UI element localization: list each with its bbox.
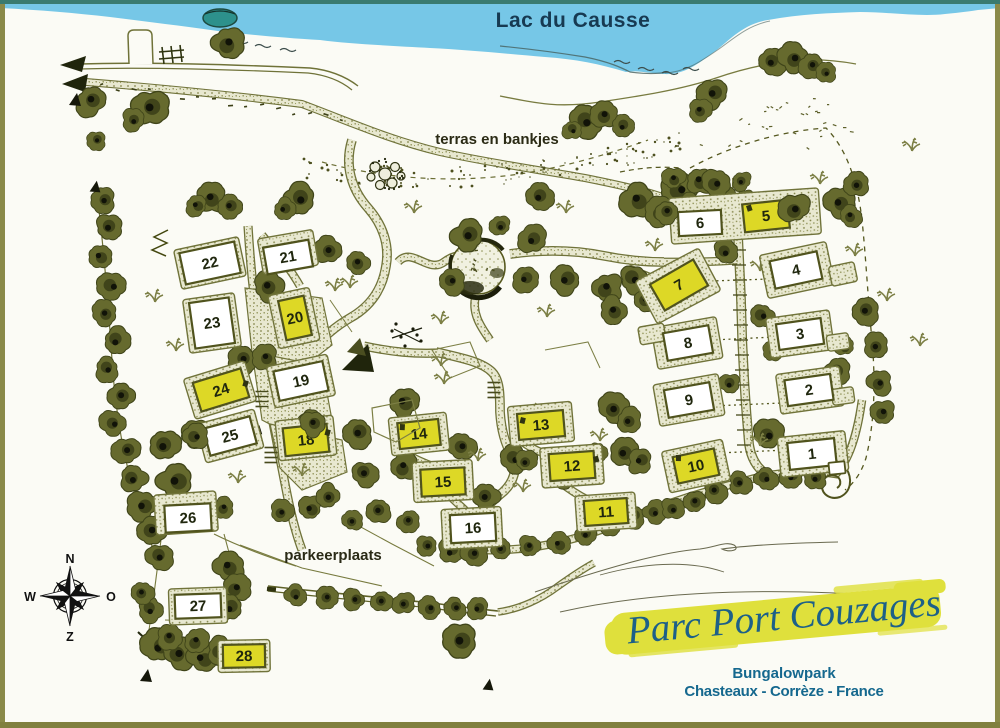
svg-text:W: W [24,590,36,604]
svg-text:Z: Z [66,630,74,644]
svg-text:27: 27 [189,598,206,616]
svg-text:terras en bankjes: terras en bankjes [435,131,558,148]
svg-text:parkeerplaats: parkeerplaats [284,547,382,564]
svg-text:5: 5 [761,208,771,226]
svg-text:20: 20 [285,308,305,328]
svg-text:12: 12 [563,457,581,475]
svg-text:22: 22 [200,253,220,273]
svg-text:N: N [65,552,74,566]
svg-text:28: 28 [236,648,253,665]
svg-text:Lac du Causse: Lac du Causse [496,9,651,32]
svg-text:10: 10 [686,456,706,476]
svg-text:19: 19 [291,371,311,391]
svg-text:15: 15 [434,474,452,492]
svg-text:O: O [106,590,116,604]
svg-text:23: 23 [203,314,222,333]
svg-text:13: 13 [532,416,550,434]
svg-text:Chasteaux - Corrèze - France: Chasteaux - Corrèze - France [684,683,883,700]
svg-text:6: 6 [695,215,704,232]
svg-text:1: 1 [807,446,817,464]
svg-text:11: 11 [598,503,615,521]
svg-text:Bungalowpark: Bungalowpark [732,665,836,682]
svg-text:16: 16 [464,520,482,538]
svg-text:26: 26 [179,510,197,528]
svg-text:21: 21 [278,248,297,268]
